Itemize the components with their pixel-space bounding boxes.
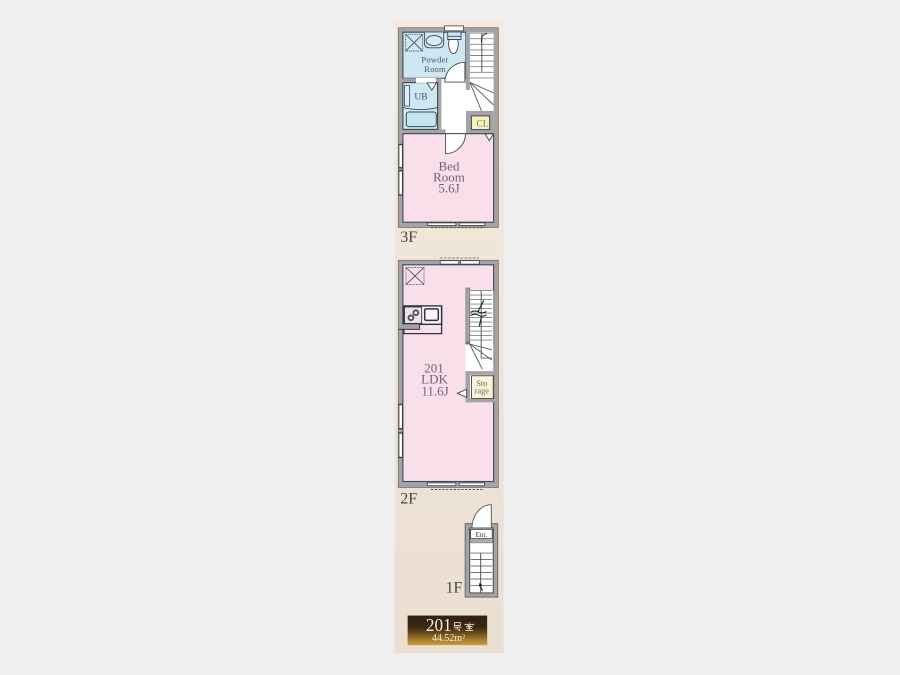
svg-text:2F: 2F <box>400 490 417 507</box>
svg-text:Ent.: Ent. <box>476 531 488 539</box>
svg-text:Powder: Powder <box>421 54 448 64</box>
svg-text:3F: 3F <box>400 229 417 246</box>
svg-text:5.6J: 5.6J <box>438 180 459 195</box>
svg-text:CL: CL <box>477 120 489 130</box>
svg-text:11.6J: 11.6J <box>421 383 448 398</box>
svg-text:44.52m²: 44.52m² <box>432 633 465 644</box>
svg-text:1F: 1F <box>446 579 463 596</box>
svg-text:UB: UB <box>414 93 427 103</box>
svg-text:rage: rage <box>475 387 489 396</box>
svg-text:Room: Room <box>424 64 446 74</box>
